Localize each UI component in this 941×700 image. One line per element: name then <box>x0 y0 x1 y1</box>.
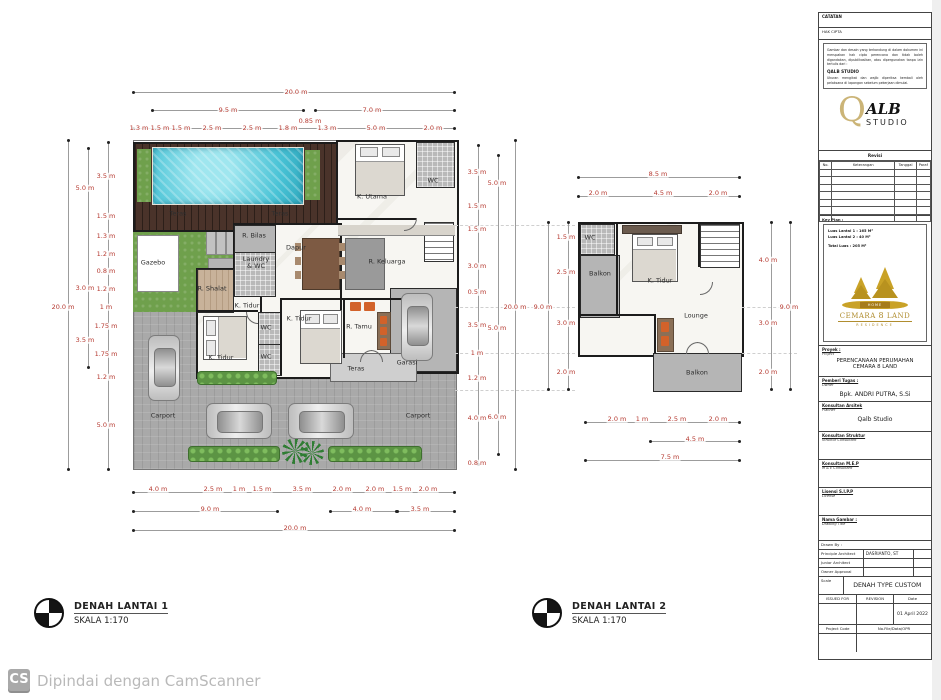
alb-logo-studio: STUDIO <box>866 118 909 127</box>
revisi-title: Revisi <box>819 151 931 161</box>
scale-label: Scale <box>819 577 844 595</box>
dimension-label: 3.0 m <box>467 263 488 270</box>
dimension-label: 2.0 m <box>607 416 628 423</box>
revisi-col-keterangan: Keterangan <box>832 162 895 170</box>
tb-konsultan-mep: Konsultan M.E.P M & E Consultant <box>819 460 931 488</box>
dimension-label: 2.5 m <box>202 125 223 132</box>
upper-bed <box>632 234 678 282</box>
room-label: K. Tidur <box>287 315 312 322</box>
camscanner-watermark: Dipindai dengan CamScanner <box>37 672 260 690</box>
dimension-label: 2.5 m <box>242 125 263 132</box>
dimension-label: 1.5 m <box>171 125 192 132</box>
dimension-label: 1.2 m <box>96 286 117 293</box>
dimension-label: 1.2 m <box>96 251 117 258</box>
struktur-sublabel: Struktur Consultant <box>822 438 928 442</box>
room-label: Laundry & WC <box>241 256 271 270</box>
hedge <box>188 446 280 462</box>
dimension-label: 1 m <box>99 304 114 311</box>
dimension-label: 1.5 m <box>556 234 577 241</box>
dimension-label: 2.5 m <box>667 416 688 423</box>
dimension-label: 2.0 m <box>365 486 386 493</box>
dimension-label: 1.5 m <box>392 486 413 493</box>
arsitek-sublabel: Planner <box>822 408 928 412</box>
dimension-label: 20.0 m <box>284 89 309 96</box>
dimension-label: 1 m <box>635 416 650 423</box>
room-label: K. Tidur <box>648 277 673 284</box>
room-label: Lounge <box>684 312 708 319</box>
wall <box>654 314 656 353</box>
drawing-title-value: DENAH TYPE CUSTOM <box>844 577 931 595</box>
alb-logo-q: Q <box>838 93 866 127</box>
room-label: Garasi <box>397 359 418 366</box>
dimension-label: 1.3 m <box>317 125 338 132</box>
dimension-label: 3.5 m <box>75 337 96 344</box>
copyright-paragraph: Bila terdapat perbedaan ukuran, segera k… <box>827 88 923 89</box>
room-label: K. Tidur <box>209 354 234 361</box>
area-summary: Luas Lantai 1 : 165 M² Luas Lantai 2 : 4… <box>828 228 922 249</box>
dimension-label: 4.0 m <box>352 506 373 513</box>
room-label: Teras <box>348 365 365 372</box>
drawing-sheet: TerasTerasK. UtamaWCGazeboR. BilasLaundr… <box>0 0 941 700</box>
logo-eight: 8 <box>878 311 884 320</box>
dimension-label: 9.0 m <box>779 304 800 311</box>
dimension-label: 1.5 m <box>96 213 117 220</box>
tb-catatan: CATATAN <box>819 13 931 28</box>
dimension-label: 2.0 m <box>423 125 444 132</box>
wall <box>280 298 282 375</box>
camscanner-logo-icon: CS <box>8 669 30 691</box>
armchair <box>350 302 361 311</box>
dimension-label: 7.0 m <box>362 107 383 114</box>
logo-residence: RESIDENCE <box>824 323 926 327</box>
tb-pemberi-tugas: Pemberi Tugas : Owner Bpk. ANDRI PUTRA, … <box>819 377 931 402</box>
dimension-label: 1.5 m <box>467 226 488 233</box>
dimension-label: 2.0 m <box>588 190 609 197</box>
sofa <box>377 312 391 350</box>
tb-konsultan-struktur: Konsultan Struktur Struktur Consultant <box>819 432 931 460</box>
date-label: Date <box>894 595 931 604</box>
swimming-pool <box>152 147 304 205</box>
dimension-label: 9.0 m <box>533 304 554 311</box>
dimension-label: 1 m <box>232 486 247 493</box>
drawn-by-label: Drawn By : <box>819 541 931 550</box>
dimension-label: 2.0 m <box>708 190 729 197</box>
luas2-label: Luas Lantai 2 <box>828 235 855 239</box>
issued-for-label: ISSUED FOR <box>819 595 857 604</box>
armchair <box>364 302 375 311</box>
wardrobe <box>622 225 682 234</box>
wall <box>280 298 416 300</box>
pool-planter <box>137 149 151 202</box>
dimension-label: 3.0 m <box>75 285 96 292</box>
logo-land: LAND <box>887 312 910 320</box>
dimension-label: 20.0 m <box>51 304 76 311</box>
hak-cipta-label: HAK CIPTA <box>822 29 842 34</box>
dimension-label: 3.5 m <box>467 322 488 329</box>
date-value: 01 April 2022 <box>894 604 931 625</box>
dimension-label: 1.3 m <box>129 125 150 132</box>
alb-studio-logo: Q ALB STUDIO <box>822 91 928 146</box>
dimension-label: 1 m <box>470 350 485 357</box>
arsitek-value: Qalb Studio <box>822 416 928 423</box>
dimension-label: 3.5 m <box>96 173 117 180</box>
car <box>206 403 272 439</box>
room-label: R. Tamu <box>346 323 372 330</box>
logo-tree <box>872 279 898 298</box>
dimension-label: 8.5 m <box>648 171 669 178</box>
revisi-col-tanggal: Tanggal <box>895 162 916 170</box>
car <box>288 403 354 439</box>
pool-planter <box>305 150 320 200</box>
scan-edge <box>932 0 941 700</box>
drawing-marker-icon <box>34 598 64 628</box>
sun-lounger <box>216 231 226 255</box>
dimension-label: 4.5 m <box>653 190 674 197</box>
dining-chair <box>295 271 301 279</box>
room-label: WC <box>585 234 596 241</box>
drawing-marker-icon <box>532 598 562 628</box>
catatan-label: CATATAN <box>822 14 842 19</box>
pemberi-value: Bpk. ANDRI PUTRA, S.Si <box>822 391 928 398</box>
logo-cemara: CEMARA <box>840 312 876 320</box>
dimension-label: 0.8 m <box>467 460 488 467</box>
logo-divider <box>838 321 912 322</box>
project-code-label: Project Code <box>819 625 857 634</box>
dimension-label: 2.5 m <box>203 486 224 493</box>
tb-lisensi: Lisensi S.I.P.P License <box>819 488 931 516</box>
dimension-label: 2.5 m <box>556 269 577 276</box>
proyek-sublabel: Project <box>822 352 928 356</box>
dimension-label: 2.0 m <box>708 416 729 423</box>
dimension-label: 20.0 m <box>283 525 308 532</box>
nama-gambar-sublabel: Drawing Title <box>822 522 928 526</box>
room-label: K. Tidur <box>235 302 260 309</box>
luas1-label: Luas Lantai 1 <box>828 229 855 233</box>
palm-tree <box>300 441 324 465</box>
dimension-label: 1.75 m <box>94 351 119 358</box>
room-label: Dapur <box>286 244 306 251</box>
dimension-label: 2.0 m <box>418 486 439 493</box>
dimension-label: 5.0 m <box>96 422 117 429</box>
dimension-label: 1.75 m <box>94 323 119 330</box>
dimension-label: 20.0 m <box>503 304 528 311</box>
grid-centerline <box>742 353 797 354</box>
plan1-title: DENAH LANTAI 1 <box>74 601 168 614</box>
dimension-label: 3.5 m <box>292 486 313 493</box>
pemberi-sublabel: Owner <box>822 383 928 387</box>
total-luas-value: : 205 M² <box>850 244 867 248</box>
plan1-scale: SKALA 1:170 <box>74 616 168 626</box>
wall <box>578 314 656 316</box>
dimension-label: 1.5 m <box>252 486 273 493</box>
dimension-label: 2.0 m <box>556 369 577 376</box>
dimension-label: 0.8 m <box>96 268 117 275</box>
dimension-label: 5.0 m <box>75 185 96 192</box>
dimension-label: 3.0 m <box>758 320 779 327</box>
luas2-value: : 40 M² <box>856 235 870 239</box>
dining-chair <box>339 271 345 279</box>
dimension-label: 1.5 m <box>150 125 171 132</box>
dining-table <box>302 238 340 290</box>
alb-logo-text: ALB <box>866 100 901 118</box>
cemara-land-logo: HOME CEMARA 8 LAND RESIDENCE <box>824 263 926 335</box>
dimension-label: 3.5 m <box>410 506 431 513</box>
car-in-garage <box>401 293 433 361</box>
master-bed <box>355 144 405 196</box>
stairs-upper <box>700 224 740 268</box>
kitchen-counter <box>338 225 455 236</box>
room-label: Teras <box>170 210 187 217</box>
dining-chair <box>295 257 301 265</box>
tb-keyplan: Key Plan : Luas Lantai 1 : 165 M² Luas L… <box>819 216 931 346</box>
dining-chair <box>339 243 345 251</box>
plan2-title: DENAH LANTAI 2 <box>572 601 666 614</box>
keyplan-label: Key Plan : <box>822 217 928 222</box>
logo-home-banner: HOME <box>860 302 890 308</box>
revisi-table: No. Keterangan Tanggal Paraf <box>819 161 931 222</box>
total-luas-label: Total Luas <box>828 244 848 248</box>
dimension-label: 7.5 m <box>660 454 681 461</box>
room-label: WC <box>261 353 272 360</box>
revisi-col-paraf: Paraf <box>916 162 930 170</box>
wall <box>616 222 618 316</box>
dimension-label: 1.2 m <box>96 374 117 381</box>
tb-proyek: Proyek : Project PERENCANAAN PERUMAHAN C… <box>819 346 931 377</box>
revisi-col-no: No. <box>820 162 832 170</box>
room-label: Balkon <box>589 270 611 277</box>
owner-approval-label: Owner Approval <box>819 568 864 577</box>
logo-tree <box>851 285 871 299</box>
room-label: Balkon <box>686 369 708 376</box>
mep-sublabel: M & E Consultant <box>822 466 928 470</box>
room-label: Carport <box>151 412 176 419</box>
room-label: R. Bilas <box>242 232 266 239</box>
tb-hak-cipta: HAK CIPTA <box>819 28 931 40</box>
owner-approval-value <box>864 568 914 577</box>
copyright-paragraph: Ukuran mengikat dan wajib diperiksa kemb… <box>827 76 923 86</box>
dimension-label: 0.5 m <box>467 289 488 296</box>
dimension-label: 4.0 m <box>148 486 169 493</box>
room-label: R. Keluarga <box>369 258 406 265</box>
lisensi-sublabel: License <box>822 494 928 498</box>
room-label: K. Utama <box>357 193 387 200</box>
tb-nama-gambar: Nama Gambar : Drawing Title <box>819 516 931 541</box>
plan2-scale: SKALA 1:170 <box>572 616 666 626</box>
luas1-value: : 165 M² <box>856 229 873 233</box>
dimension-label: 2.0 m <box>332 486 353 493</box>
dimension-label: 1.2 m <box>467 375 488 382</box>
principle-architect-label: Principle Architect <box>819 550 864 559</box>
revision-label: REVISION <box>857 595 894 604</box>
copyright-studio: QALB STUDIO <box>827 69 923 74</box>
copyright-paragraph: Gambar dan desain yang terkandung di dal… <box>827 48 923 67</box>
tb-konsultan-arsitek: Konsultan Arsitek Planner Qalb Studio <box>819 402 931 432</box>
tb-copyright: Gambar dan desain yang terkandung di dal… <box>819 40 931 151</box>
dimension-label: 5.0 m <box>487 180 508 187</box>
dimension-label: 5.0 m <box>366 125 387 132</box>
hedge <box>328 446 422 462</box>
proyek-value-2: CEMARA 8 LAND <box>822 364 928 370</box>
room-label: Gazebo <box>141 259 166 266</box>
dimension-label: 4.0 m <box>758 257 779 264</box>
dimension-label: 9.0 m <box>200 506 221 513</box>
hedge <box>197 371 277 385</box>
dimension-label: 9.5 m <box>218 107 239 114</box>
dimension-label: 4.5 m <box>685 436 706 443</box>
wall <box>698 222 700 267</box>
dimension-label: 3.0 m <box>556 320 577 327</box>
logo-name: CEMARA 8 LAND <box>824 311 926 320</box>
room-label: WC <box>428 177 439 184</box>
principle-architect-value: DASRIANTO, ST <box>864 550 914 559</box>
balcony-left <box>580 255 620 318</box>
dimension-label: 4.0 m <box>467 415 488 422</box>
room-label: Teras <box>272 210 289 217</box>
wall <box>343 298 345 358</box>
dimension-label: 1.3 m <box>96 233 117 240</box>
tb-revisi: Revisi No. Keterangan Tanggal Paraf <box>819 151 931 216</box>
dimension-label: 1.8 m <box>278 125 299 132</box>
room-label: Carport <box>406 412 431 419</box>
junior-architect-value <box>864 559 914 568</box>
dimension-label: 6.0 m <box>487 414 508 421</box>
car <box>148 335 180 401</box>
file-no-label: No.File/Data/OPR <box>857 625 931 634</box>
dimension-label: 1.5 m <box>467 203 488 210</box>
dining-chair <box>339 257 345 265</box>
room-label: R. Shalat <box>198 285 227 292</box>
title-block: CATATAN HAK CIPTA Gambar dan desain yang… <box>818 12 932 660</box>
lounge-sofa <box>657 318 674 352</box>
dimension-label: 3.5 m <box>467 169 488 176</box>
room-label: WC <box>261 324 272 331</box>
sun-lounger <box>206 231 216 255</box>
dimension-label: 2.0 m <box>758 369 779 376</box>
dimension-label: 5.0 m <box>487 325 508 332</box>
junior-architect-label: Junior Architect <box>819 559 864 568</box>
tb-signature-table: Drawn By : Principle Architect DASRIANTO… <box>819 541 931 652</box>
